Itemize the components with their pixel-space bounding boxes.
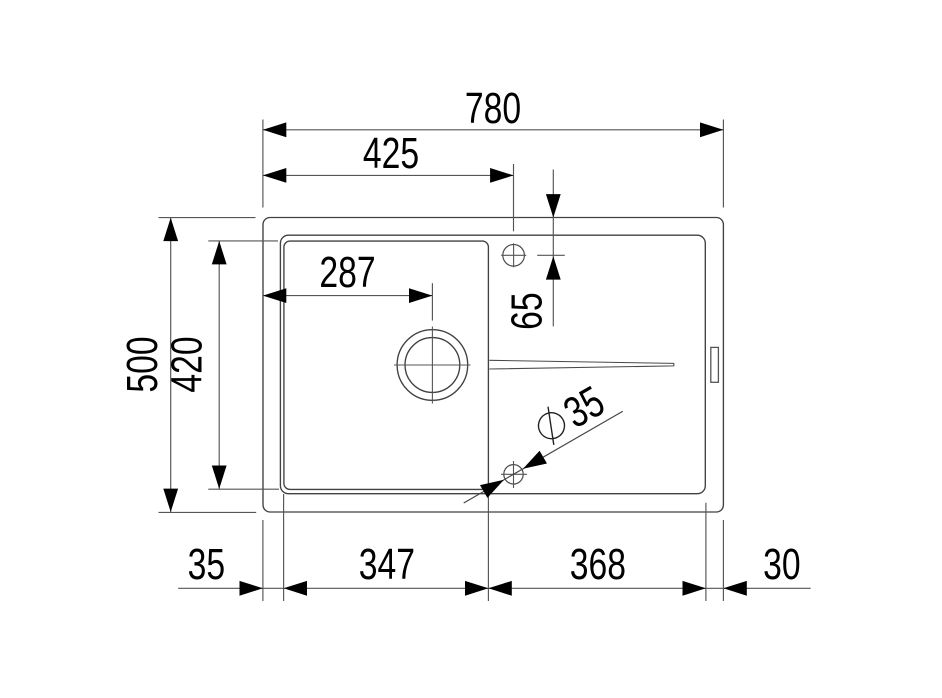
svg-text:500: 500 (119, 336, 167, 392)
svg-text:347: 347 (359, 541, 415, 589)
svg-text:30: 30 (763, 541, 800, 589)
svg-text:287: 287 (319, 249, 375, 297)
svg-text:420: 420 (163, 336, 211, 392)
svg-text:368: 368 (570, 541, 626, 589)
svg-text:780: 780 (465, 85, 521, 133)
svg-text:35: 35 (188, 541, 225, 589)
svg-text:425: 425 (363, 130, 419, 178)
svg-text:65: 65 (503, 292, 551, 329)
